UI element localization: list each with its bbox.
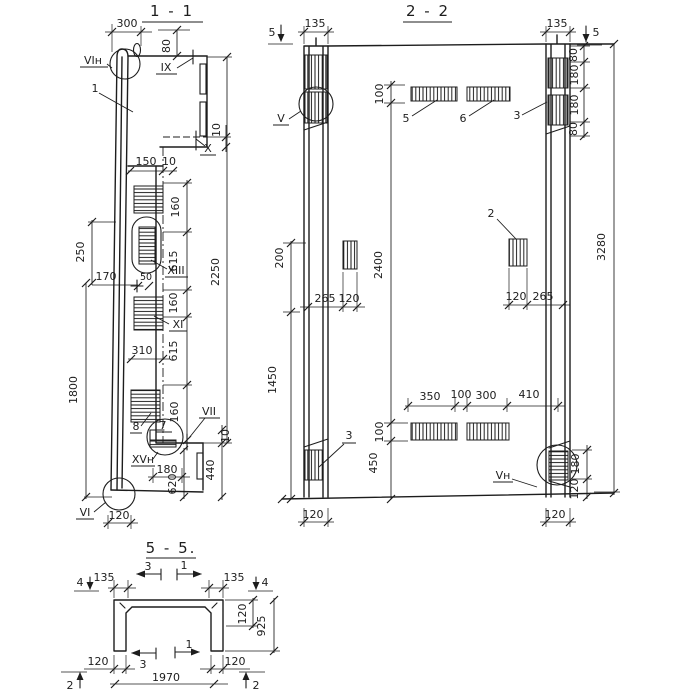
embed-plate-hatch <box>134 186 163 213</box>
dim-300: 300 <box>117 17 138 30</box>
dim-120-right: 120 <box>506 290 527 303</box>
dim-120: 120 <box>109 509 130 522</box>
section-5-5: 5 - 5. 4 4 135 135 3 1 120 925 3 1 120 1… <box>61 539 280 692</box>
ref-vin: VIн <box>84 54 102 67</box>
edge-key-notch <box>197 453 203 479</box>
embed-strip-hatch <box>411 87 457 101</box>
dim-120-bottom-left: 120 <box>303 508 324 521</box>
embed-strip-hatch <box>467 423 509 440</box>
dim-10: 10 <box>162 155 176 168</box>
dim-410: 410 <box>519 388 540 401</box>
dim-80: 80 <box>160 39 173 53</box>
dim-1450: 1450 <box>266 366 279 394</box>
ref-5: 5 <box>403 112 410 125</box>
cut-mark-2-left: 2 <box>67 679 74 692</box>
ref-xvn: XVн <box>132 453 154 466</box>
lifting-slot-bar <box>139 227 155 264</box>
embed-strip-hatch <box>411 423 457 440</box>
edge-key-notch <box>200 64 206 94</box>
dim-615: 615 <box>167 341 180 362</box>
cut-mark-5-right: 5 <box>593 26 600 39</box>
dim-120-bottom-left: 120 <box>88 655 109 668</box>
drawing-canvas: 1 - 1 300 80 VIн 1 IX X 150 10 <box>0 0 700 700</box>
embed-plate-hatch <box>131 390 160 422</box>
ref-3-bottom: 3 <box>346 429 353 442</box>
ref-vii: VII <box>202 405 216 418</box>
embed-plate-hatch <box>134 297 163 330</box>
ref-v: V <box>277 112 285 125</box>
dim-450: 450 <box>367 453 380 474</box>
ref-2: 2 <box>488 207 495 220</box>
dim-2250: 2250 <box>209 258 222 286</box>
label-underlines <box>76 67 220 519</box>
dim-3280: 3280 <box>595 233 608 261</box>
dim-120-left: 120 <box>339 292 360 305</box>
dim-135-right: 135 <box>224 571 245 584</box>
embed-plate-hatch <box>509 239 527 266</box>
technical-drawing-sheet: 1 - 1 300 80 VIн 1 IX X 150 10 <box>0 0 700 700</box>
section-2-2-title: 2 - 2 <box>406 2 450 20</box>
cut-mark-3-bottom: 3 <box>140 658 147 671</box>
step-detail-hatch <box>150 440 176 447</box>
dim-440: 440 <box>204 460 217 481</box>
section-5-5-title: 5 - 5. <box>146 539 197 557</box>
joint-ticks <box>187 50 196 450</box>
dimension-lines <box>61 588 274 684</box>
dim-160: 160 <box>169 197 182 218</box>
dim-135-right: 135 <box>547 17 568 30</box>
dim-1970: 1970 <box>152 671 180 684</box>
channel-outline <box>114 600 223 651</box>
section-1-1: 1 - 1 300 80 VIн 1 IX X 150 10 <box>67 2 232 529</box>
dim-180: 180 <box>568 65 581 86</box>
cut-mark-4-left: 4 <box>77 576 84 589</box>
dim-160: 160 <box>167 293 180 314</box>
dim-50: 50 <box>140 272 152 283</box>
ref-ix: IX <box>161 61 172 74</box>
dim-200: 200 <box>273 248 286 269</box>
dim-135-left: 135 <box>305 17 326 30</box>
ref-x: X <box>204 142 212 155</box>
cut-mark-2-right: 2 <box>253 679 260 692</box>
dim-620: 620 <box>166 474 179 495</box>
column-hatch <box>305 92 327 123</box>
dim-170: 170 <box>96 270 117 283</box>
dim-100-top: 100 <box>373 84 386 105</box>
edge-key-notch <box>200 102 206 136</box>
cut-mark-1-top: 1 <box>181 559 188 572</box>
dim-180-bottom: 180 <box>569 454 582 475</box>
dim-925: 925 <box>255 616 268 637</box>
ref-xiii: XIII <box>167 264 184 277</box>
dim-2400: 2400 <box>372 251 385 279</box>
cut-mark-1-bottom: 1 <box>186 638 193 651</box>
column-hatch <box>305 450 323 480</box>
dim-350: 350 <box>420 390 441 403</box>
dim-1800: 1800 <box>67 376 80 404</box>
cut-mark-3-top: 3 <box>145 560 152 573</box>
ref-1: 1 <box>92 82 99 95</box>
dim-160: 160 <box>168 402 181 423</box>
dim-250: 250 <box>74 242 87 263</box>
dim-265-right: 265 <box>533 290 554 303</box>
dim-80: 80 <box>567 48 580 62</box>
dim-80: 80 <box>567 122 580 136</box>
dim-265-left: 265 <box>315 292 336 305</box>
dim-310: 310 <box>132 344 153 357</box>
dim-120-chain: 120 <box>568 479 581 500</box>
dim-135-left: 135 <box>94 571 115 584</box>
ref-6: 6 <box>460 112 467 125</box>
section-2-2: 2 - 2 5 5 135 135 V 80 180 180 <box>266 2 620 527</box>
ref-vn: Vн <box>496 469 511 482</box>
ref-vi: VI <box>80 506 91 519</box>
embed-plate-hatch <box>343 241 357 269</box>
column-hatch <box>548 58 568 88</box>
dim-120-bottom-right: 120 <box>545 508 566 521</box>
cut-mark-4-right: 4 <box>262 576 269 589</box>
dim-120-flange: 120 <box>236 604 249 625</box>
column-hatch <box>548 95 568 125</box>
detail-circle-vin <box>110 49 140 79</box>
ref-3-top: 3 <box>514 109 521 122</box>
dim-180: 180 <box>568 95 581 116</box>
dim-100-bottom: 100 <box>451 388 472 401</box>
dim-300: 300 <box>476 389 497 402</box>
section-1-1-title: 1 - 1 <box>150 2 194 20</box>
ref-xi: XI <box>173 318 184 331</box>
detail-circle-vi <box>103 478 135 510</box>
dim-120-bottom-right: 120 <box>225 655 246 668</box>
dim-10-vii: 10 <box>219 429 232 443</box>
dim-100-mid: 100 <box>373 422 386 443</box>
ref-7: 7 <box>160 419 167 432</box>
embed-strip-hatch <box>467 87 510 101</box>
ref-8: 8 <box>133 420 140 433</box>
column-hatch <box>305 55 327 89</box>
dim-150: 150 <box>136 155 157 168</box>
column-hatch <box>549 451 568 480</box>
cut-mark-5-left: 5 <box>269 26 276 39</box>
dim-10-step: 10 <box>210 123 223 137</box>
